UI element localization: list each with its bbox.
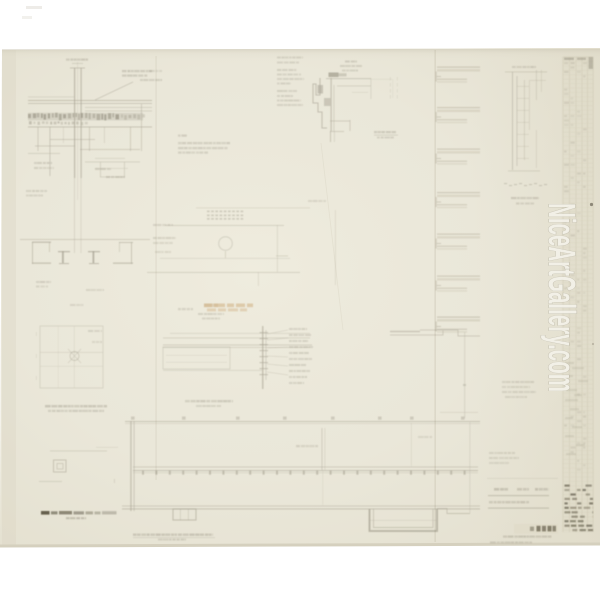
svg-text:NiceArtGallery.com: NiceArtGallery.com [540,203,582,392]
